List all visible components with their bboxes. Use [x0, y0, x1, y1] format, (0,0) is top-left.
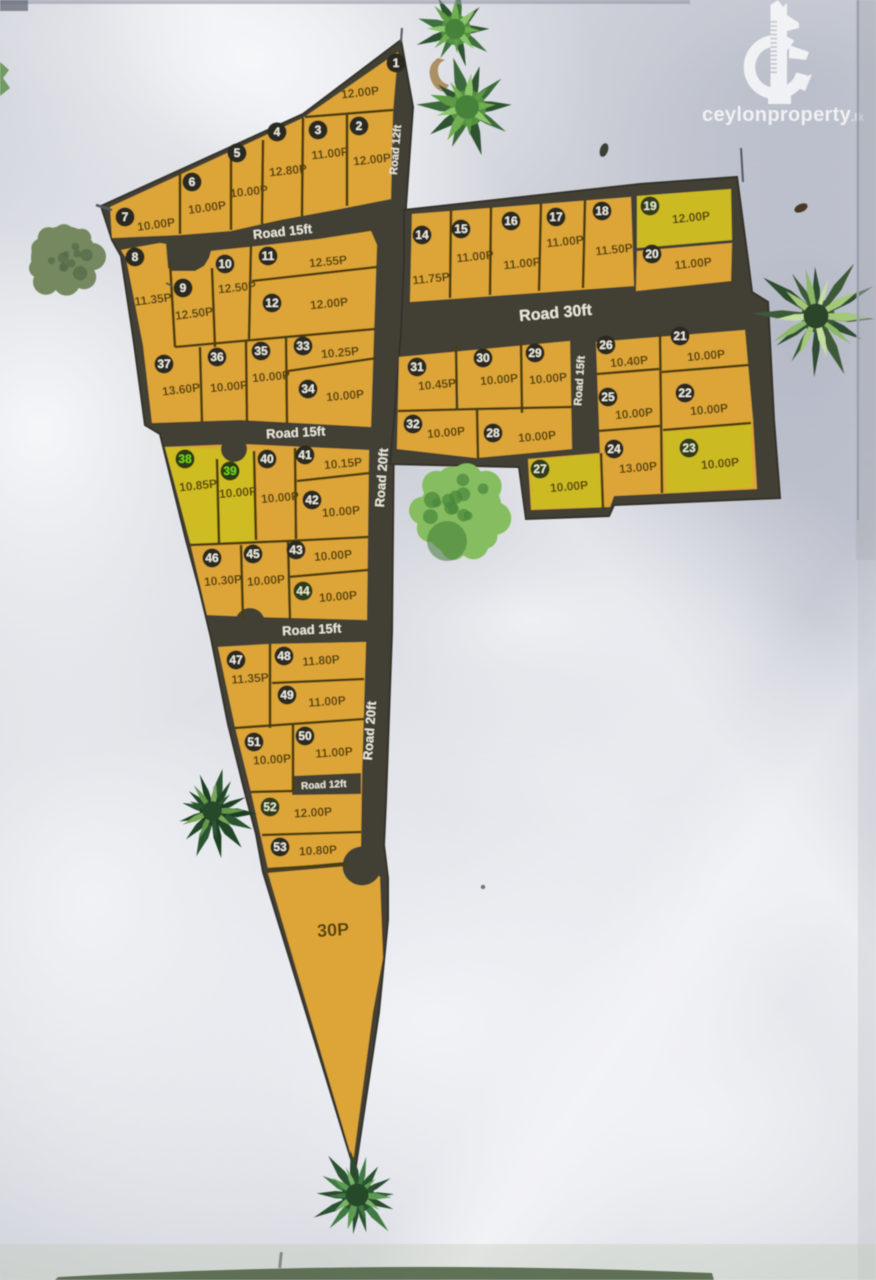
svg-text:28: 28 [486, 426, 500, 440]
svg-text:45: 45 [246, 547, 260, 561]
svg-text:5: 5 [234, 146, 241, 160]
svg-text:12: 12 [265, 296, 279, 310]
svg-text:30P: 30P [316, 919, 349, 941]
svg-text:42: 42 [305, 493, 319, 507]
svg-text:Road 15ft: Road 15ft [266, 423, 327, 441]
svg-text:17: 17 [549, 210, 563, 224]
svg-text:Road 15ft: Road 15ft [282, 620, 343, 638]
svg-text:38: 38 [178, 452, 192, 466]
svg-text:10.00P: 10.00P [247, 572, 286, 589]
svg-text:32: 32 [406, 417, 420, 431]
svg-text:37: 37 [157, 357, 171, 371]
svg-text:23: 23 [682, 441, 696, 455]
svg-text:39: 39 [223, 464, 237, 478]
svg-text:52: 52 [263, 800, 277, 814]
svg-text:47: 47 [229, 653, 243, 667]
svg-text:34: 34 [301, 382, 315, 396]
svg-text:3: 3 [315, 123, 322, 137]
svg-text:31: 31 [410, 360, 424, 374]
svg-text:11.35P: 11.35P [231, 670, 269, 687]
svg-text:14: 14 [415, 228, 429, 242]
svg-text:10.30P: 10.30P [204, 572, 243, 589]
svg-text:50: 50 [298, 729, 312, 743]
svg-text:1: 1 [393, 56, 400, 70]
svg-text:43: 43 [289, 543, 303, 557]
svg-text:46: 46 [205, 551, 219, 565]
svg-text:7: 7 [122, 210, 129, 224]
svg-text:11: 11 [262, 249, 275, 263]
svg-text:29: 29 [528, 346, 542, 360]
svg-text:26: 26 [599, 338, 613, 352]
svg-text:10.80P: 10.80P [299, 842, 338, 858]
svg-text:12.00P: 12.00P [294, 804, 333, 820]
svg-text:24: 24 [607, 442, 621, 456]
svg-text:11.00P: 11.00P [315, 744, 353, 760]
svg-text:22: 22 [678, 386, 692, 400]
svg-text:ceylonproperty.lk: ceylonproperty.lk [702, 104, 865, 126]
svg-text:11.00P: 11.00P [308, 693, 346, 710]
svg-text:18: 18 [595, 204, 609, 218]
svg-text:11.80P: 11.80P [302, 652, 340, 669]
svg-text:25: 25 [601, 390, 615, 404]
svg-text:10.00P: 10.00P [319, 588, 358, 605]
svg-text:2: 2 [356, 119, 363, 133]
svg-text:51: 51 [247, 735, 261, 749]
svg-text:10.00P: 10.00P [253, 751, 292, 767]
svg-text:20: 20 [645, 247, 659, 261]
svg-text:53: 53 [273, 840, 287, 854]
svg-text:15: 15 [454, 222, 468, 236]
svg-text:21: 21 [673, 329, 687, 343]
svg-text:33: 33 [296, 339, 310, 353]
svg-text:8: 8 [132, 250, 139, 264]
svg-text:10.00P: 10.00P [314, 547, 353, 564]
svg-text:36: 36 [210, 350, 224, 364]
svg-text:19: 19 [643, 199, 657, 213]
svg-text:27: 27 [533, 462, 547, 476]
svg-text:41: 41 [298, 448, 312, 462]
svg-text:4: 4 [274, 125, 281, 139]
svg-text:44: 44 [296, 584, 310, 598]
svg-text:6: 6 [189, 175, 196, 189]
svg-text:10: 10 [218, 257, 232, 271]
svg-text:30: 30 [476, 351, 490, 365]
svg-text:49: 49 [280, 688, 294, 702]
svg-text:35: 35 [254, 344, 268, 358]
svg-text:40: 40 [260, 452, 274, 466]
svg-text:9: 9 [180, 281, 187, 295]
svg-text:48: 48 [277, 649, 291, 663]
svg-text:16: 16 [504, 214, 518, 228]
